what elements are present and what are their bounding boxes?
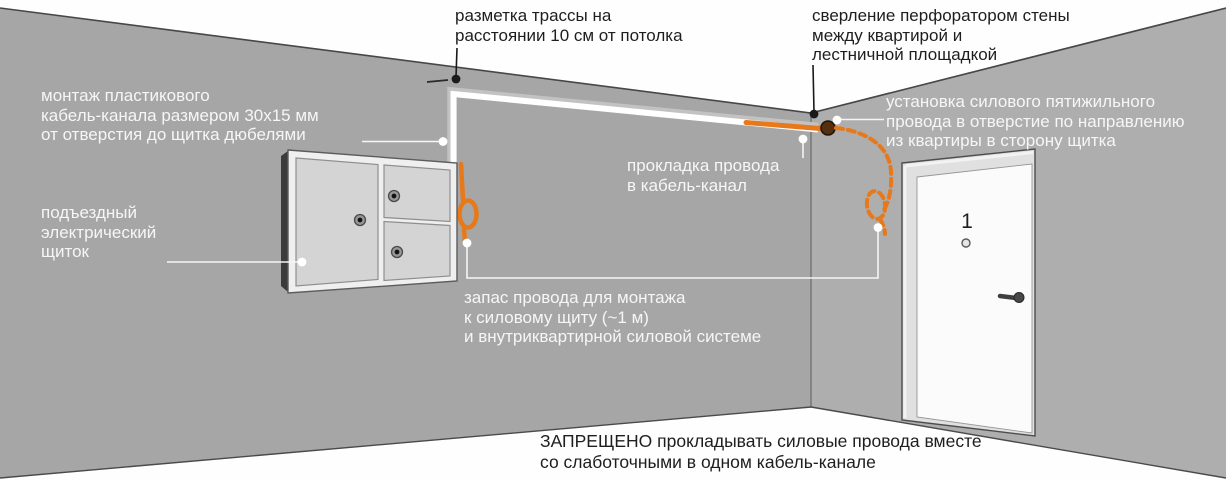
panel-side-shadow: [281, 151, 288, 292]
electrical-panel: [281, 150, 457, 293]
annotation-marking-route: разметка трассы на расстоянии 10 см от п…: [455, 6, 683, 45]
callout-marking: [452, 48, 461, 83]
annotation-wire-reserve: запас провода для монтажа к силовому щит…: [464, 288, 761, 347]
callout-dot: [452, 75, 461, 84]
callout-drilling: [810, 65, 819, 118]
wire-left-drop: [461, 164, 463, 200]
callout-line: [813, 65, 814, 112]
panel-lock-top: [389, 191, 400, 202]
door-number: 1: [955, 210, 979, 234]
callout-line: [456, 48, 457, 77]
annotation-channel-mount: монтаж пластикового кабель-канала размер…: [41, 86, 319, 145]
callout-dot: [874, 223, 883, 232]
annotation-drilling: сверление перфоратором стены между кварт…: [812, 6, 1070, 65]
apartment-door: [902, 149, 1035, 436]
callout-dot: [463, 239, 472, 248]
annotation-wire-laying: прокладка провода в кабель-канал: [627, 156, 779, 195]
annotation-panel: подъездный электрический щиток: [41, 203, 156, 262]
callout-dot: [810, 110, 819, 119]
panel-lock-large: [355, 215, 366, 226]
callout-dot: [799, 135, 808, 144]
wiring-diagram: разметка трассы на расстоянии 10 см от п…: [0, 0, 1226, 480]
annotation-prohibition: ЗАПРЕЩЕНО прокладывать силовые провода в…: [540, 431, 982, 473]
drilled-hole: [821, 121, 835, 135]
callout-dot: [298, 258, 307, 267]
callout-dot: [833, 116, 842, 125]
diagram-graphics: [0, 0, 1226, 480]
annotation-wire-through-hole: установка силового пятижильного провода …: [886, 92, 1184, 151]
peephole-icon: [962, 239, 970, 247]
callout-dot: [439, 137, 448, 146]
panel-lock-bottom: [392, 247, 403, 258]
